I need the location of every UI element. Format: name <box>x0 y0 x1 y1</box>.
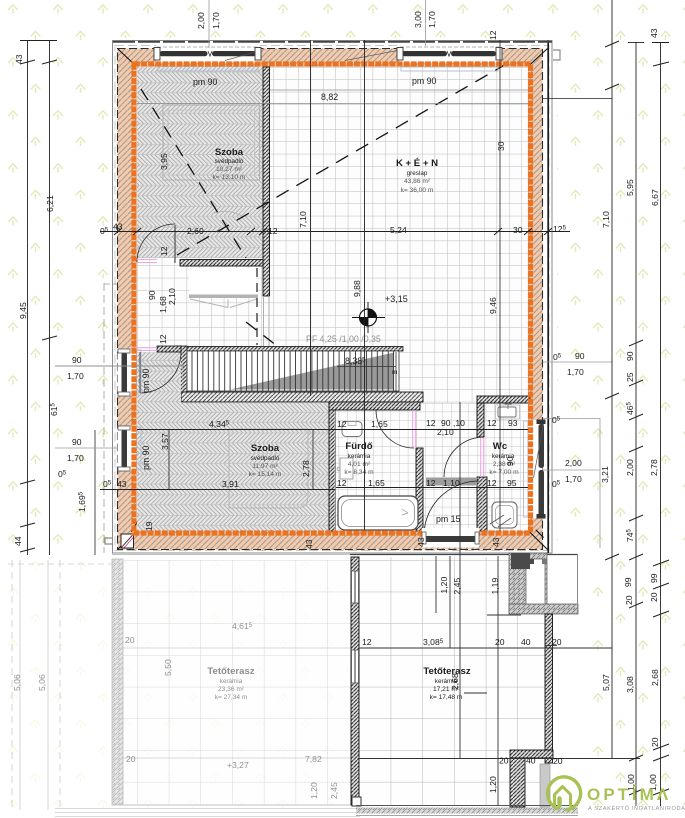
svg-text:k= 36,00 m: k= 36,00 m <box>401 187 434 194</box>
svg-text:12: 12 <box>426 478 436 488</box>
svg-text:5,06: 5,06 <box>37 674 47 691</box>
svg-text:12: 12 <box>159 246 169 256</box>
svg-text:1,20: 1,20 <box>309 782 319 799</box>
svg-text:2,60: 2,60 <box>187 226 204 236</box>
svg-text:svédpadló: svédpadló <box>215 158 244 165</box>
svg-text:3,08: 3,08 <box>625 676 635 693</box>
svg-text:9,46: 9,46 <box>488 297 498 314</box>
svg-text:43,86 m²: 43,86 m² <box>404 178 431 185</box>
svg-text:2,68: 2,68 <box>650 669 660 686</box>
svg-text:2,00: 2,00 <box>625 459 635 476</box>
svg-text:8,82: 8,82 <box>321 92 338 102</box>
svg-text:1,70: 1,70 <box>565 474 582 484</box>
svg-text:2,10: 2,10 <box>167 288 177 305</box>
svg-text:7,82: 7,82 <box>305 754 322 764</box>
svg-text:43: 43 <box>491 537 501 547</box>
svg-text:PF 4,25 /1,00 /0,35: PF 4,25 /1,00 /0,35 <box>306 334 381 344</box>
svg-text:5,06: 5,06 <box>12 674 22 691</box>
svg-text:3,95: 3,95 <box>159 153 169 170</box>
svg-text:greslap: greslap <box>407 170 428 177</box>
svg-text:43: 43 <box>113 222 123 232</box>
svg-text:pm 90: pm 90 <box>141 445 151 470</box>
svg-text:1,20: 1,20 <box>488 776 498 793</box>
svg-text:12: 12 <box>268 226 278 236</box>
svg-text:1,70: 1,70 <box>427 11 437 28</box>
svg-text:43: 43 <box>416 537 426 547</box>
svg-text:44: 44 <box>13 536 23 546</box>
svg-text:12: 12 <box>488 30 498 40</box>
svg-text:k= 17,48 m: k= 17,48 m <box>430 694 463 701</box>
svg-text:20: 20 <box>553 756 563 766</box>
svg-text:4,01 m²: 4,01 m² <box>348 461 371 468</box>
svg-text:3,91: 3,91 <box>222 479 239 489</box>
svg-text:A SZAKÉRTŐ INGATLANIRODA: A SZAKÉRTŐ INGATLANIRODA <box>588 805 685 812</box>
svg-text:1,65: 1,65 <box>368 478 385 488</box>
svg-text:1,70: 1,70 <box>67 453 84 463</box>
svg-text:6,21: 6,21 <box>45 195 55 212</box>
svg-text:25: 25 <box>625 372 635 382</box>
svg-text:19: 19 <box>144 521 154 531</box>
svg-text:k= 27,34 m: k= 27,34 m <box>215 694 248 701</box>
svg-text:1,70: 1,70 <box>211 12 221 29</box>
svg-text:90: 90 <box>72 355 82 365</box>
svg-text:,10: ,10 <box>453 418 465 428</box>
svg-text:90: 90 <box>147 290 157 300</box>
svg-text:43: 43 <box>117 479 127 489</box>
svg-text:Fürdő: Fürdő <box>345 441 372 452</box>
svg-text:20: 20 <box>649 592 659 602</box>
svg-text:30: 30 <box>513 225 523 235</box>
svg-text:12: 12 <box>337 478 347 488</box>
svg-text:12: 12 <box>362 637 372 647</box>
svg-text:K + É + N: K + É + N <box>396 157 438 169</box>
svg-text:Szoba: Szoba <box>251 443 280 454</box>
svg-text:23,36 m²: 23,36 m² <box>218 686 245 693</box>
svg-text:20: 20 <box>552 637 562 647</box>
svg-text:3,21: 3,21 <box>600 466 610 483</box>
svg-text:12: 12 <box>337 419 347 429</box>
svg-text:k= 15,14 m: k= 15,14 m <box>249 471 282 478</box>
svg-text:3,00: 3,00 <box>413 11 423 28</box>
svg-text:pm 15: pm 15 <box>436 514 461 524</box>
svg-text:90: 90 <box>625 351 635 361</box>
svg-text:1,10: 1,10 <box>443 478 460 488</box>
svg-text:20: 20 <box>624 595 634 605</box>
svg-text:99: 99 <box>649 573 659 583</box>
svg-text:6,67: 6,67 <box>650 189 660 206</box>
svg-text:kerámia: kerámia <box>348 453 371 460</box>
svg-text:7,10: 7,10 <box>601 211 611 228</box>
svg-text:12: 12 <box>426 418 436 428</box>
svg-text:+3,15: +3,15 <box>385 294 408 304</box>
svg-text:20: 20 <box>499 756 509 766</box>
svg-text:5,24: 5,24 <box>390 225 407 235</box>
svg-text:Tetőterasz: Tetőterasz <box>423 666 470 677</box>
svg-text:1,20: 1,20 <box>439 577 449 594</box>
svg-text:OPTÍMΛ: OPTÍMΛ <box>587 785 671 804</box>
svg-text:10,27 m²: 10,27 m² <box>216 166 243 173</box>
svg-text:5,07: 5,07 <box>601 674 611 691</box>
svg-text:2,78: 2,78 <box>301 460 311 477</box>
svg-text:90: 90 <box>575 351 585 361</box>
svg-text:9,45: 9,45 <box>18 302 28 319</box>
svg-text:5,50: 5,50 <box>163 659 173 676</box>
svg-text:3,57: 3,57 <box>160 433 170 450</box>
svg-text:40: 40 <box>521 637 531 647</box>
svg-text:pm 90: pm 90 <box>141 368 151 393</box>
svg-text:2,10: 2,10 <box>437 427 454 437</box>
svg-text:20: 20 <box>125 635 135 645</box>
svg-text:43: 43 <box>14 54 24 64</box>
svg-text:k= 8,34 m: k= 8,34 m <box>344 469 374 476</box>
svg-text:12: 12 <box>487 478 497 488</box>
svg-text:12: 12 <box>487 418 497 428</box>
svg-text:99: 99 <box>623 577 633 587</box>
svg-text:12: 12 <box>158 334 168 344</box>
svg-text:kerámia: kerámia <box>220 678 243 685</box>
svg-text:1,65: 1,65 <box>371 419 388 429</box>
svg-text:1,70: 1,70 <box>67 371 84 381</box>
svg-text:pm 90: pm 90 <box>193 77 218 87</box>
svg-text:5,95: 5,95 <box>625 179 635 196</box>
svg-text:m: m <box>392 369 398 376</box>
svg-text:2,00: 2,00 <box>196 12 206 29</box>
svg-text:20: 20 <box>495 637 505 647</box>
svg-text:svédpadló: svédpadló <box>251 455 280 462</box>
svg-text:2,78: 2,78 <box>649 459 659 476</box>
svg-text:40: 40 <box>526 756 536 766</box>
svg-text:1,19: 1,19 <box>490 578 500 595</box>
svg-text:93: 93 <box>508 418 518 428</box>
svg-text:pm 90: pm 90 <box>412 76 437 86</box>
svg-text:Szoba: Szoba <box>215 147 244 158</box>
svg-text:11,97 m²: 11,97 m² <box>252 463 278 470</box>
svg-text:43: 43 <box>649 28 659 38</box>
svg-text:k= 13,10 m: k= 13,10 m <box>213 174 246 181</box>
svg-text:30: 30 <box>496 141 506 151</box>
svg-text:7,10: 7,10 <box>298 211 308 228</box>
svg-text:90: 90 <box>72 437 82 447</box>
svg-text:20: 20 <box>126 754 136 764</box>
svg-text:2,00: 2,00 <box>565 458 582 468</box>
svg-text:95: 95 <box>507 478 517 488</box>
svg-text:90: 90 <box>505 456 515 466</box>
svg-text:1,70: 1,70 <box>567 367 584 377</box>
svg-text:Tetőterasz: Tetőterasz <box>207 666 254 677</box>
svg-text:20: 20 <box>650 737 660 747</box>
svg-text:2,68: 2,68 <box>450 673 460 690</box>
svg-text:43: 43 <box>304 539 314 549</box>
svg-text:2,45: 2,45 <box>329 782 339 799</box>
svg-text:9,88: 9,88 <box>352 280 362 297</box>
svg-text:k= 7,00 m: k= 7,00 m <box>489 469 519 476</box>
svg-text:+3,27: +3,27 <box>227 760 249 770</box>
svg-text:2,45: 2,45 <box>452 578 462 595</box>
